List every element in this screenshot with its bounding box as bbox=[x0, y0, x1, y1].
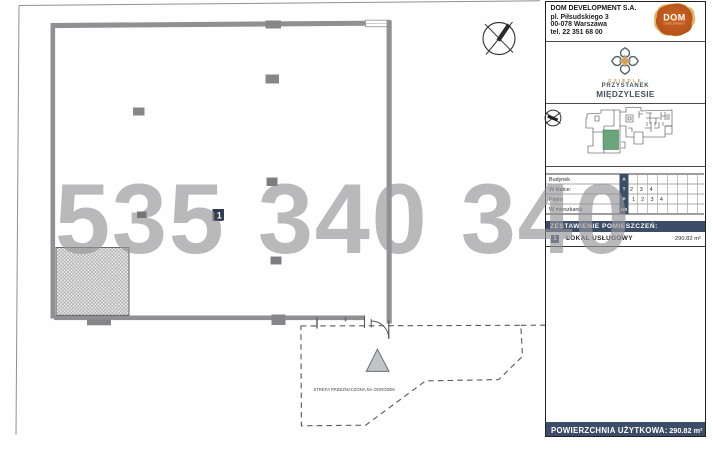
svg-text:1: 1 bbox=[217, 210, 222, 220]
svg-text:3: 3 bbox=[640, 187, 643, 193]
svg-text:2: 2 bbox=[641, 197, 644, 203]
svg-text:DEVELOPMENT: DEVELOPMENT bbox=[664, 23, 686, 26]
svg-text:4: 4 bbox=[650, 187, 653, 193]
svg-text:4: 4 bbox=[660, 197, 663, 203]
svg-text:DOM: DOM bbox=[663, 13, 686, 23]
svg-text:1: 1 bbox=[632, 197, 635, 203]
svg-text:STREFA PRZEZNACZONA NA OGRÓDEK: STREFA PRZEZNACZONA NA OGRÓDEK bbox=[314, 387, 396, 392]
svg-text:3: 3 bbox=[651, 197, 654, 203]
